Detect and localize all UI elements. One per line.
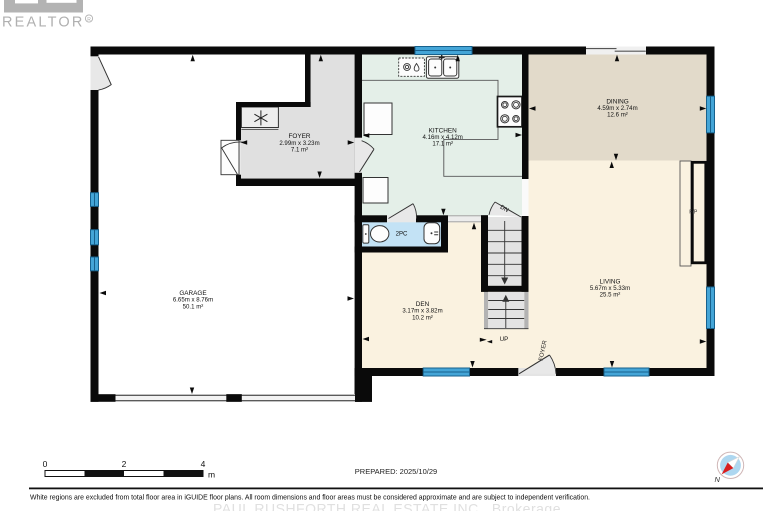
svg-text:PREPARED: 2025/10/29: PREPARED: 2025/10/29 [355,467,437,476]
svg-text:m: m [208,470,215,480]
svg-text:50.1 m²: 50.1 m² [183,303,204,310]
svg-text:PAUL RUSHFORTH REAL ESTATE INC: PAUL RUSHFORTH REAL ESTATE INC., Brokera… [213,501,561,511]
svg-text:2PC: 2PC [396,230,408,237]
svg-text:7.1 m²: 7.1 m² [291,147,308,154]
svg-text:2: 2 [122,459,127,469]
svg-text:17.1 m²: 17.1 m² [432,141,453,148]
svg-text:25.5 m²: 25.5 m² [600,292,621,299]
svg-text:REALTOR: REALTOR [2,15,85,31]
svg-text:10.2 m²: 10.2 m² [412,314,433,321]
svg-text:UP: UP [500,336,508,343]
svg-text:F/P: F/P [689,210,698,216]
svg-text:0: 0 [43,459,48,469]
svg-text:N: N [715,475,721,484]
svg-text:4: 4 [201,459,206,469]
svg-text:R: R [87,17,91,23]
